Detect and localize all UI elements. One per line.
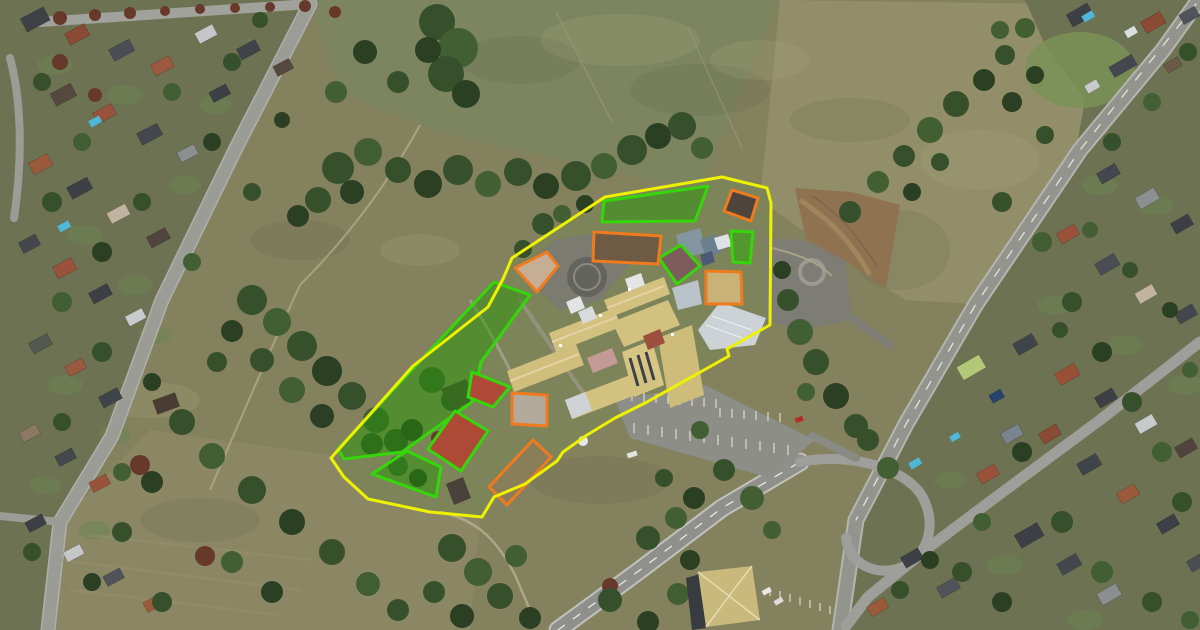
zone-court-west[interactable] xyxy=(512,393,547,426)
screenshot-root xyxy=(0,0,1200,630)
satellite-map xyxy=(0,0,1200,630)
zone-roof-tan-northeast[interactable] xyxy=(706,271,742,304)
zone-dirt-yard[interactable] xyxy=(593,232,661,264)
zone-grass-northeast[interactable] xyxy=(731,231,753,263)
